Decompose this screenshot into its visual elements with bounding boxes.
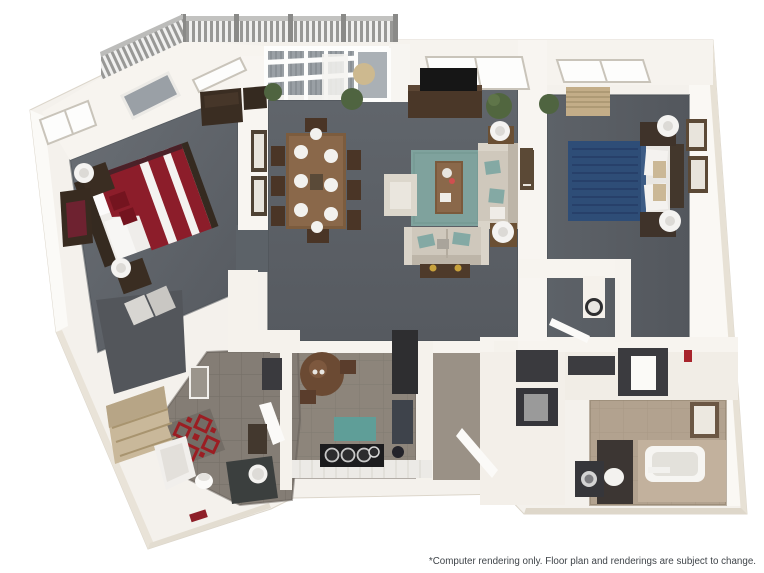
svg-text:*Computer rendering only. Floo: *Computer rendering only. Floor plan and… [429, 556, 756, 567]
